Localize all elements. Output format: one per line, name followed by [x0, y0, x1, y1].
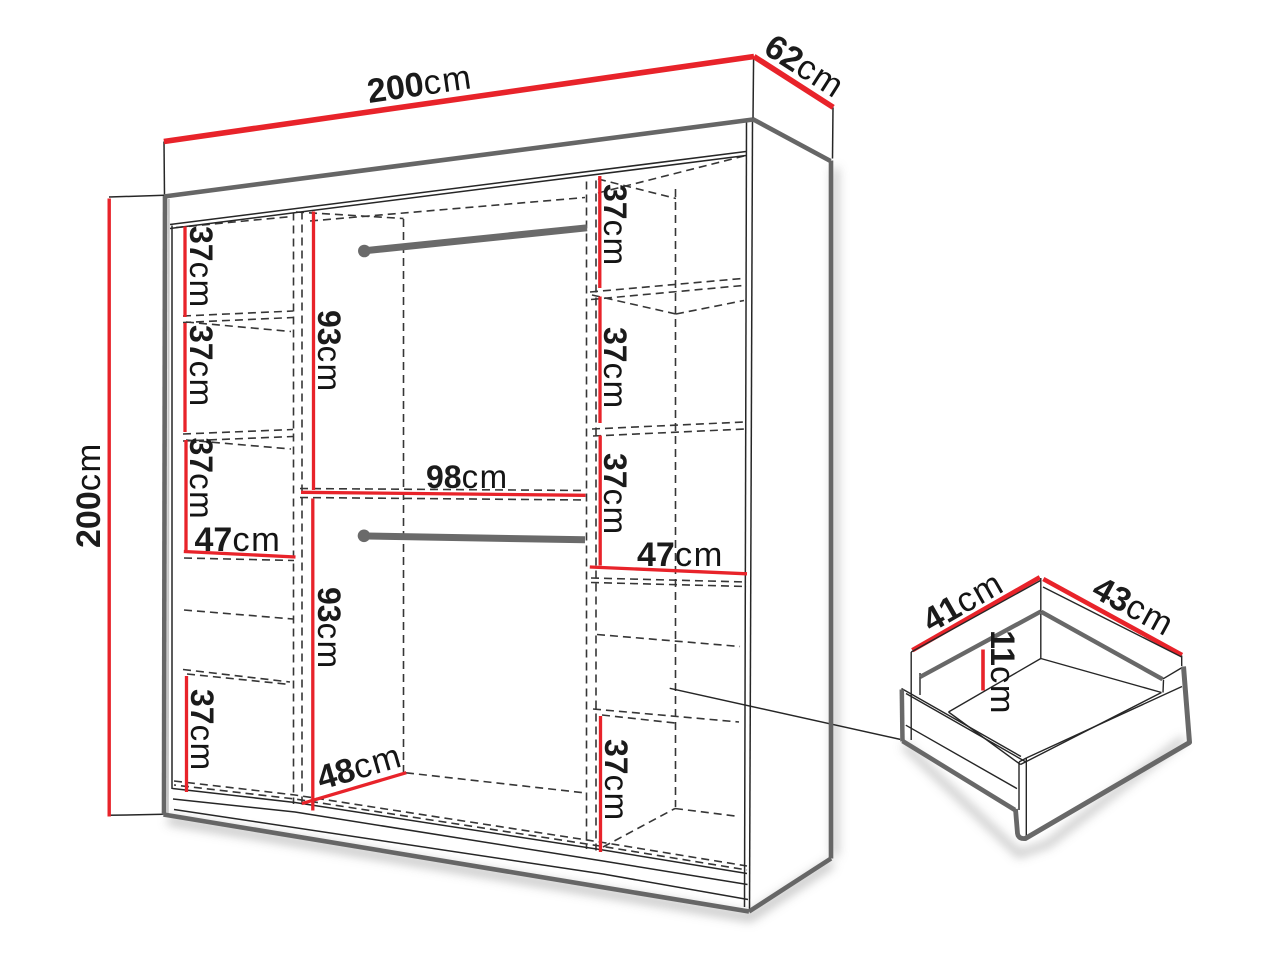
svg-text:37cm: 37cm	[597, 184, 634, 267]
svg-text:11cm: 11cm	[983, 630, 1021, 715]
svg-text:62cm: 62cm	[758, 27, 852, 106]
svg-text:37cm: 37cm	[183, 438, 220, 521]
svg-text:37cm: 37cm	[183, 325, 220, 408]
svg-text:37cm: 37cm	[597, 327, 634, 410]
svg-text:93cm: 93cm	[311, 310, 348, 393]
svg-text:93cm: 93cm	[311, 587, 348, 670]
svg-text:37cm: 37cm	[597, 453, 634, 536]
svg-text:47cm: 47cm	[637, 536, 724, 574]
svg-text:37cm: 37cm	[183, 226, 220, 309]
svg-text:47cm: 47cm	[195, 521, 282, 559]
svg-text:98cm: 98cm	[426, 458, 509, 495]
svg-text:200cm: 200cm	[70, 442, 108, 548]
svg-text:48cm: 48cm	[313, 737, 407, 798]
svg-text:37cm: 37cm	[598, 739, 635, 822]
svg-text:200cm: 200cm	[365, 58, 475, 111]
svg-text:41cm: 41cm	[916, 564, 1010, 640]
svg-text:37cm: 37cm	[184, 689, 221, 772]
